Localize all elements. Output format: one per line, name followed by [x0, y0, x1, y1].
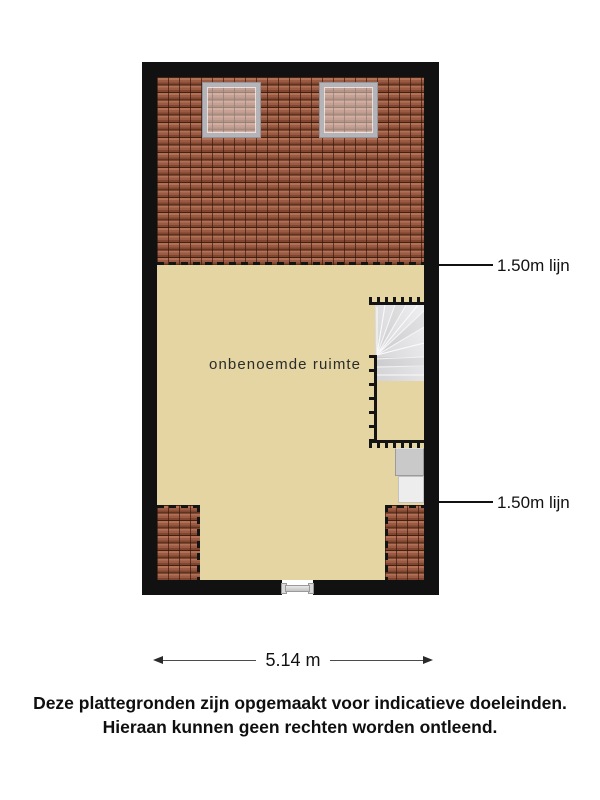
- floorplan-page: onbenoemde ruimte: [0, 0, 600, 800]
- disclaimer: Deze plattegronden zijn opgemaakt voor i…: [0, 692, 600, 739]
- dimension-rule: [330, 660, 423, 661]
- leader-line-1: [439, 264, 493, 266]
- cabinet-fixture-top: [395, 448, 424, 476]
- roof-slope-bottom-left: [157, 505, 200, 580]
- disclaimer-line-2: Hieraan kunnen geen rechten worden ontle…: [0, 716, 600, 740]
- roof-edge-dashed-line: [157, 505, 200, 508]
- disclaimer-line-1: Deze plattegronden zijn opgemaakt voor i…: [0, 692, 600, 716]
- stair-railing-top: [369, 297, 424, 305]
- height-line-label-2: 1.50m lijn: [497, 492, 570, 513]
- staircase: [375, 305, 424, 381]
- arrow-left-icon: [153, 656, 163, 664]
- dimension-line: 5.14 m: [153, 649, 433, 671]
- floorplan: onbenoemde ruimte: [142, 62, 439, 595]
- roof-edge-dashed-line: [197, 505, 200, 580]
- railing-bar: [374, 355, 377, 440]
- room-interior: onbenoemde ruimte: [157, 77, 424, 580]
- arrow-right-icon: [423, 656, 433, 664]
- roof-slope-top: [157, 77, 424, 265]
- cabinet-fixture-bottom: [398, 476, 424, 503]
- roof-edge-dashed-line: [385, 505, 424, 508]
- leader-line-2: [439, 501, 493, 503]
- stair-railing-bottom: [369, 440, 424, 448]
- dimension-rule: [163, 660, 256, 661]
- height-line-label-1: 1.50m lijn: [497, 255, 570, 276]
- stair-railing-left: [369, 355, 377, 440]
- room-label: onbenoemde ruimte: [209, 356, 361, 373]
- skylight-window-right: [320, 83, 377, 137]
- window-opening: [282, 580, 313, 595]
- window-sill: [285, 585, 310, 592]
- roof-edge-dashed-line: [385, 505, 388, 580]
- roof-slope-bottom-right: [385, 505, 424, 580]
- roof-edge-dashed-line: [157, 262, 424, 265]
- skylight-window-left: [203, 83, 260, 137]
- dimension-value: 5.14 m: [265, 650, 320, 671]
